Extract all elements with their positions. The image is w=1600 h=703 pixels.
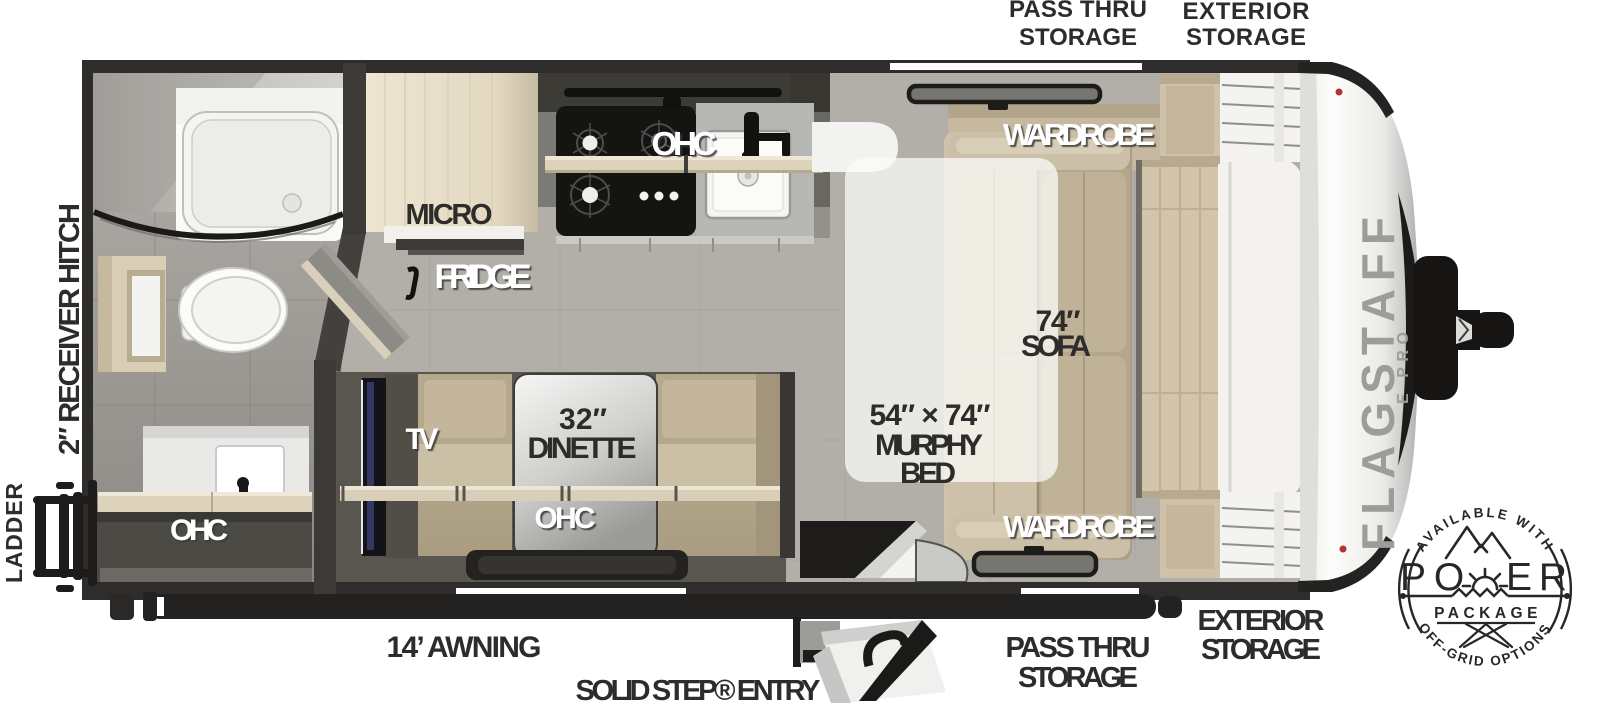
svg-text:BED: BED: [900, 457, 956, 490]
svg-text:OHC: OHC: [535, 502, 596, 535]
svg-text:54″ × 74″: 54″ × 74″: [870, 399, 991, 432]
svg-text:PASS THRU: PASS THRU: [1009, 0, 1147, 23]
svg-text:WARDROBE: WARDROBE: [1003, 509, 1155, 544]
svg-text:PACKAGE: PACKAGE: [1434, 605, 1542, 622]
svg-text:DINETTE: DINETTE: [528, 432, 637, 465]
svg-text:EXTERIOR: EXTERIOR: [1198, 605, 1325, 637]
svg-text:WARDROBE: WARDROBE: [1003, 117, 1155, 152]
svg-text:R: R: [1539, 556, 1567, 599]
svg-text:2″ RECEIVER HITCH: 2″ RECEIVER HITCH: [54, 203, 86, 455]
svg-text:SOFA: SOFA: [1021, 330, 1091, 363]
svg-text:TV: TV: [406, 423, 439, 456]
svg-text:EXTERIOR: EXTERIOR: [1183, 0, 1310, 25]
svg-text:OHC: OHC: [170, 514, 228, 547]
svg-text:FRIDGE: FRIDGE: [435, 258, 532, 296]
svg-text:P: P: [1400, 556, 1426, 599]
svg-text:MICRO: MICRO: [406, 199, 493, 231]
svg-text:E: E: [1506, 556, 1532, 599]
svg-text:STORAGE: STORAGE: [1186, 24, 1306, 51]
svg-text:STORAGE: STORAGE: [1019, 24, 1137, 51]
svg-text:PASS THRU: PASS THRU: [1006, 632, 1151, 664]
svg-text:STORAGE: STORAGE: [1201, 634, 1321, 666]
svg-text:LADDER: LADDER: [1, 483, 27, 583]
svg-text:FLAGSTAFF: FLAGSTAFF: [1352, 209, 1404, 551]
svg-text:SOLID STEP® ENTRY: SOLID STEP® ENTRY: [576, 675, 821, 703]
svg-text:14’ AWNING: 14’ AWNING: [387, 631, 542, 664]
svg-text:O: O: [1434, 556, 1464, 599]
svg-text:OHC: OHC: [652, 125, 717, 162]
svg-text:STORAGE: STORAGE: [1018, 662, 1138, 694]
